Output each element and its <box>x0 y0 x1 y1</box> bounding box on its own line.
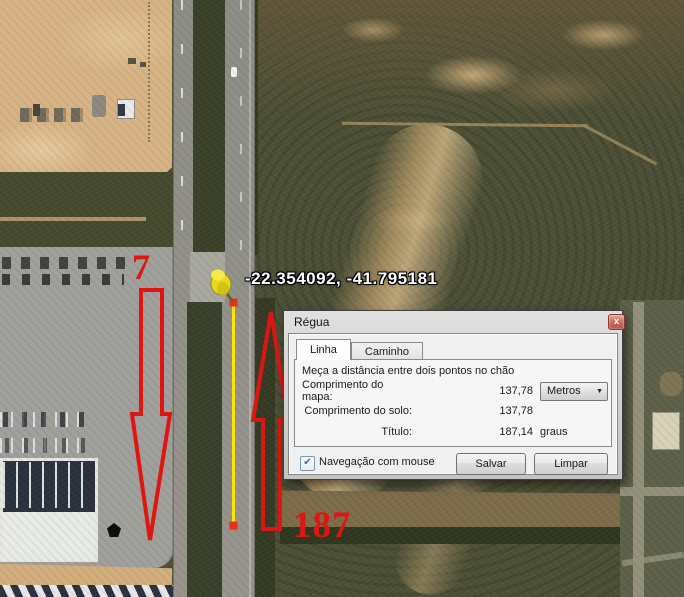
tab-bar: Linha Caminho <box>296 340 423 360</box>
field-value: 137,78 <box>412 385 535 397</box>
instruction-text: Meça a distância entre dois pontos no ch… <box>302 365 611 377</box>
close-icon[interactable]: x <box>608 314 625 330</box>
chevron-down-icon: ▼ <box>596 388 603 395</box>
small-building <box>652 412 680 450</box>
unit-dropdown-value: Metros <box>547 385 581 397</box>
tab-panel: Meça a distância entre dois pontos no ch… <box>294 359 612 447</box>
building-roof <box>118 104 125 116</box>
annotation-number-187: 187 <box>293 507 352 544</box>
clear-button[interactable]: Limpar <box>534 453 608 475</box>
field-row-map-length: Comprimento do mapa: 137,78 Metros ▼ <box>295 379 611 400</box>
google-earth-map[interactable]: -22.354092, -41.795181 7 187 Régua x Lin… <box>0 0 684 597</box>
field-label: Comprimento do mapa: <box>302 379 412 403</box>
parked-vehicles-row <box>2 257 134 269</box>
tab-linha[interactable]: Linha <box>296 339 351 360</box>
dialog-titlebar[interactable]: Régua x <box>284 311 622 333</box>
vehicle <box>140 62 146 67</box>
equipment-row <box>20 108 88 122</box>
ruler-dialog: Régua x Linha Caminho Meça a distância e… <box>283 310 623 480</box>
field-unit: graus <box>535 426 611 438</box>
highway-median <box>187 302 222 597</box>
field-value: 137,78 <box>412 405 535 417</box>
dirt-patch <box>660 372 682 396</box>
green-strip <box>0 172 176 250</box>
checkbox-mouse-navigation[interactable]: ✔ <box>300 456 315 471</box>
cleared-dirt-field <box>0 0 172 190</box>
coordinate-label: -22.354092, -41.795181 <box>245 269 438 289</box>
tab-caminho[interactable]: Caminho <box>351 342 423 360</box>
parking-stripes <box>0 412 88 427</box>
dialog-title: Régua <box>294 315 329 329</box>
service-road-horizontal <box>620 487 684 496</box>
field-row-ground-length: Comprimento do solo: 137,78 <box>295 400 611 421</box>
dialog-footer: ✔ Navegação com mouse Salvar Limpar <box>289 453 617 475</box>
roadside-hedge <box>253 298 275 597</box>
highway-median <box>193 0 225 253</box>
vehicle <box>128 58 136 64</box>
parking-stripes <box>0 438 88 453</box>
parked-vehicles-row <box>2 274 124 285</box>
warehouse-roof-stripes <box>3 462 89 508</box>
field-label: Título: <box>302 426 412 438</box>
dialog-body: Linha Caminho Meça a distância entre doi… <box>288 333 618 475</box>
annotation-number-7: 7 <box>132 249 150 285</box>
service-road-vertical <box>633 302 644 597</box>
tank-structure <box>92 95 106 117</box>
vehicle <box>33 104 40 116</box>
field-label: Comprimento do solo: <box>302 405 412 417</box>
median-crossing <box>190 252 225 302</box>
dirt-road <box>0 217 146 221</box>
checkbox-label: Navegação com mouse <box>319 456 435 468</box>
unit-dropdown[interactable]: Metros ▼ <box>540 382 608 401</box>
field-value: 187,14 <box>412 426 535 438</box>
field-row-heading: Título: 187,14 graus <box>295 421 611 442</box>
fence-line <box>148 2 152 142</box>
save-button[interactable]: Salvar <box>456 453 526 475</box>
lane-markings <box>240 0 242 250</box>
road-edge-line <box>249 0 251 597</box>
panel-rows <box>0 585 196 597</box>
vehicle-on-road <box>231 67 237 77</box>
lane-markings <box>181 0 183 253</box>
